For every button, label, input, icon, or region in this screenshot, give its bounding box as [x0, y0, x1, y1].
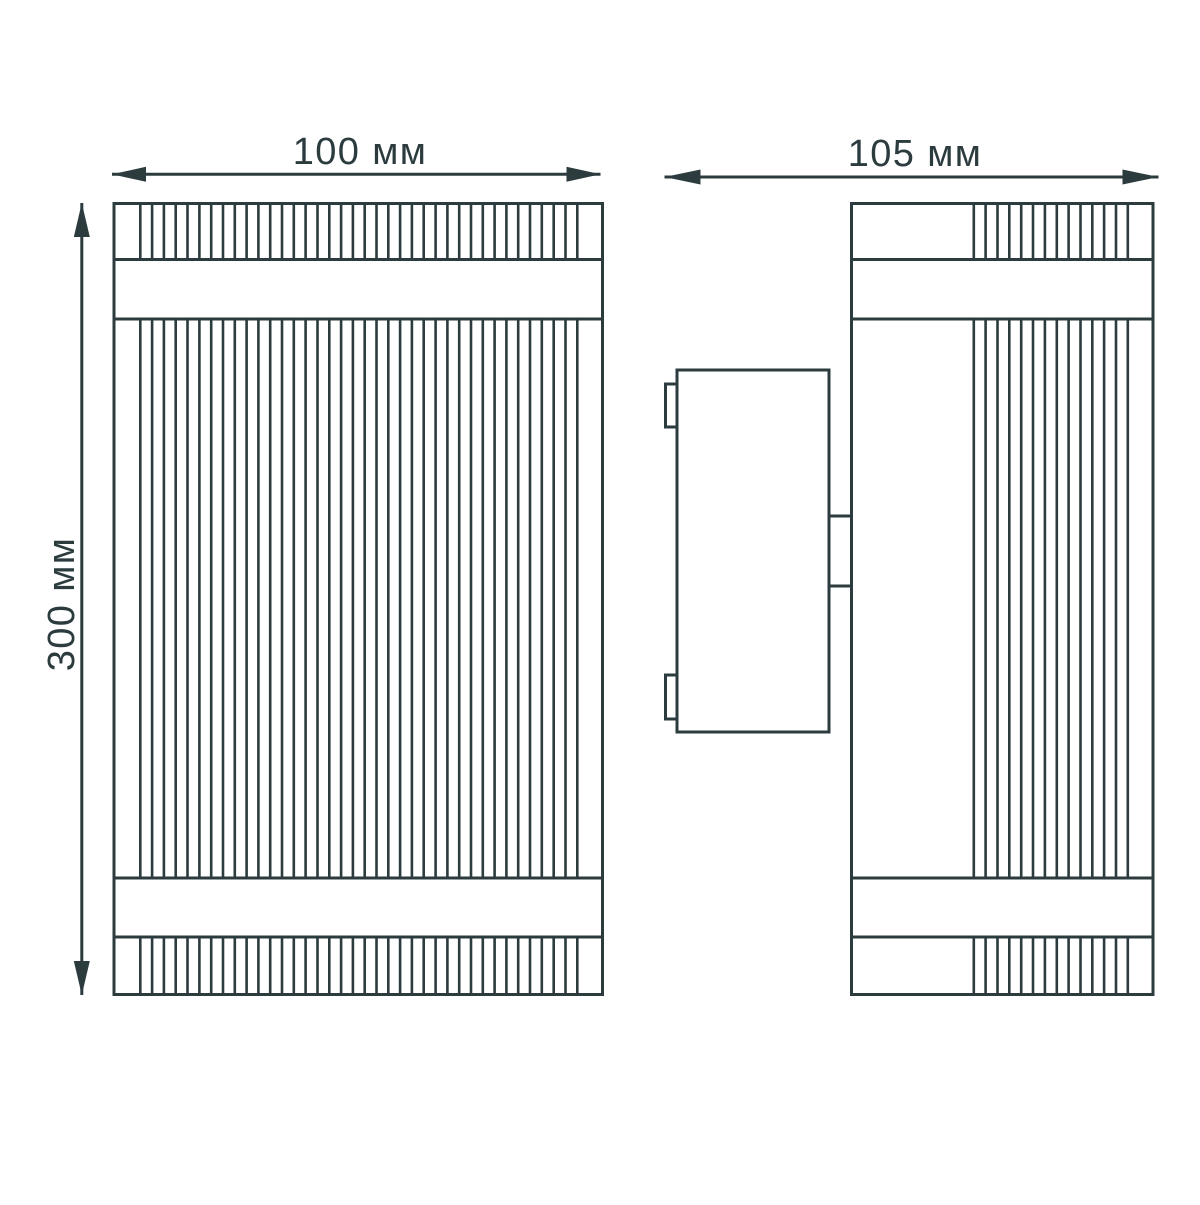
svg-text:300 мм: 300 мм: [41, 537, 83, 672]
svg-text:100 мм: 100 мм: [293, 131, 428, 173]
svg-text:105 мм: 105 мм: [848, 133, 983, 175]
